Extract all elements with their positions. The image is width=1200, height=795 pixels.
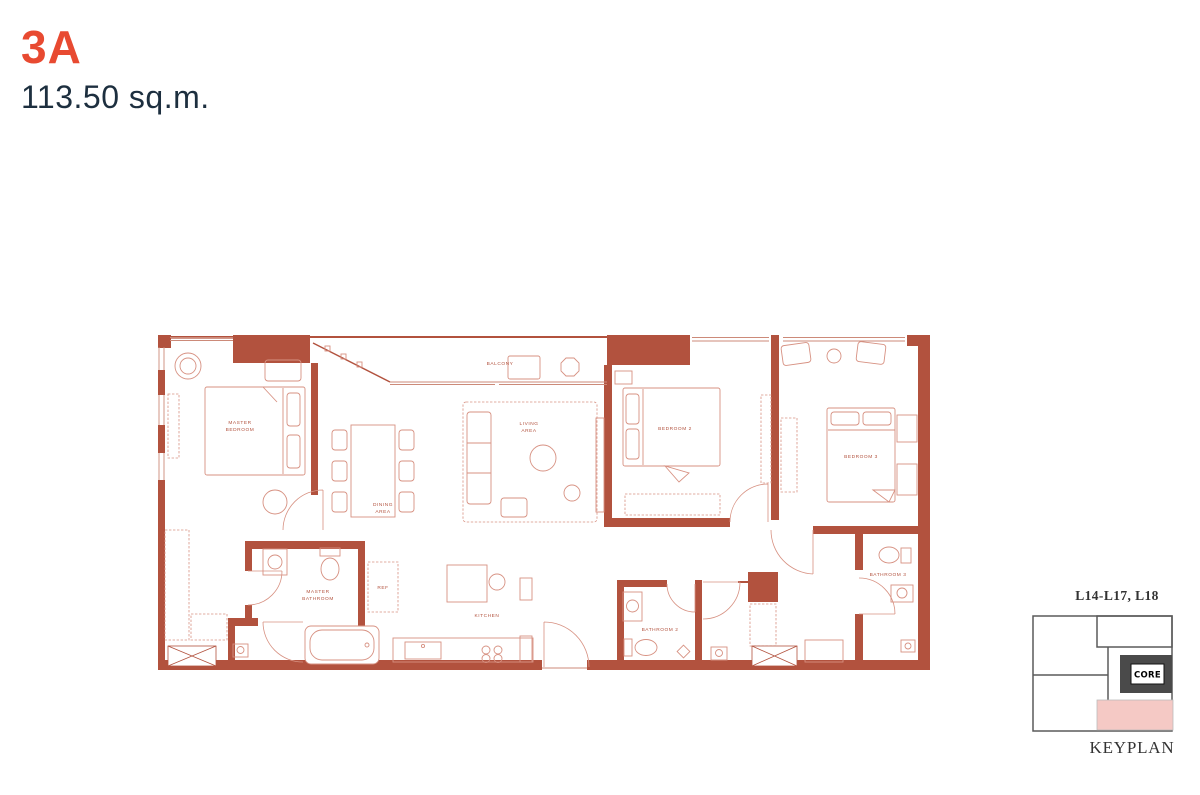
svg-text:AREA: AREA xyxy=(521,428,537,434)
keyplan-levels: L14-L17, L18 xyxy=(1075,588,1159,603)
svg-text:AREA: AREA xyxy=(375,509,391,515)
kitchen-furniture xyxy=(368,562,533,663)
keyplan-core: CORE xyxy=(1120,655,1172,693)
keyplan: L14-L17, L18 CORE KEYPLAN xyxy=(1030,583,1185,761)
walls xyxy=(158,335,930,670)
keyplan-unit-highlight xyxy=(1097,700,1173,730)
unit-name: 3A xyxy=(21,22,210,73)
label-bathroom-3: BATHROOM 3 xyxy=(870,572,907,578)
floor-plan: MASTER BEDROOM BALCONY DINING AREA LIVIN… xyxy=(155,330,935,700)
svg-text:BATHROOM: BATHROOM xyxy=(302,596,334,602)
header: 3A 113.50 sq.m. xyxy=(21,22,210,116)
bedroom-2-furniture xyxy=(615,371,720,515)
closet-hatching xyxy=(165,530,227,640)
label-bedroom-2: BEDROOM 2 xyxy=(658,426,692,432)
bedroom-3-furniture xyxy=(761,341,917,502)
label-kitchen: KITCHEN xyxy=(475,613,500,619)
bathroom-3-fixtures xyxy=(879,547,915,652)
label-bathroom-2: BATHROOM 2 xyxy=(642,627,679,633)
page: 3A 113.50 sq.m. xyxy=(0,0,1200,795)
unit-area: 113.50 sq.m. xyxy=(21,79,210,116)
keyplan-drawing: L14-L17, L18 CORE KEYPLAN xyxy=(1030,583,1185,761)
label-ref: REF xyxy=(377,585,388,591)
svg-text:BEDROOM: BEDROOM xyxy=(226,427,255,433)
label-master-bathroom: MASTER xyxy=(306,589,329,595)
floor-plan-drawing: MASTER BEDROOM BALCONY DINING AREA LIVIN… xyxy=(155,330,935,700)
label-bedroom-3: BEDROOM 3 xyxy=(844,454,878,460)
label-living-area: LIVING xyxy=(519,421,538,427)
utility-fixtures xyxy=(168,604,843,666)
bathroom-2-fixtures xyxy=(623,592,690,658)
master-bathroom-fixtures xyxy=(233,548,379,664)
keyplan-caption: KEYPLAN xyxy=(1090,738,1175,757)
keyplan-core-label: CORE xyxy=(1134,671,1161,681)
living-furniture xyxy=(463,402,604,522)
label-master-bedroom: MASTER xyxy=(228,420,251,426)
label-dining-area: DINING xyxy=(373,502,393,508)
label-balcony: BALCONY xyxy=(487,361,514,367)
master-bedroom-furniture xyxy=(168,353,305,514)
